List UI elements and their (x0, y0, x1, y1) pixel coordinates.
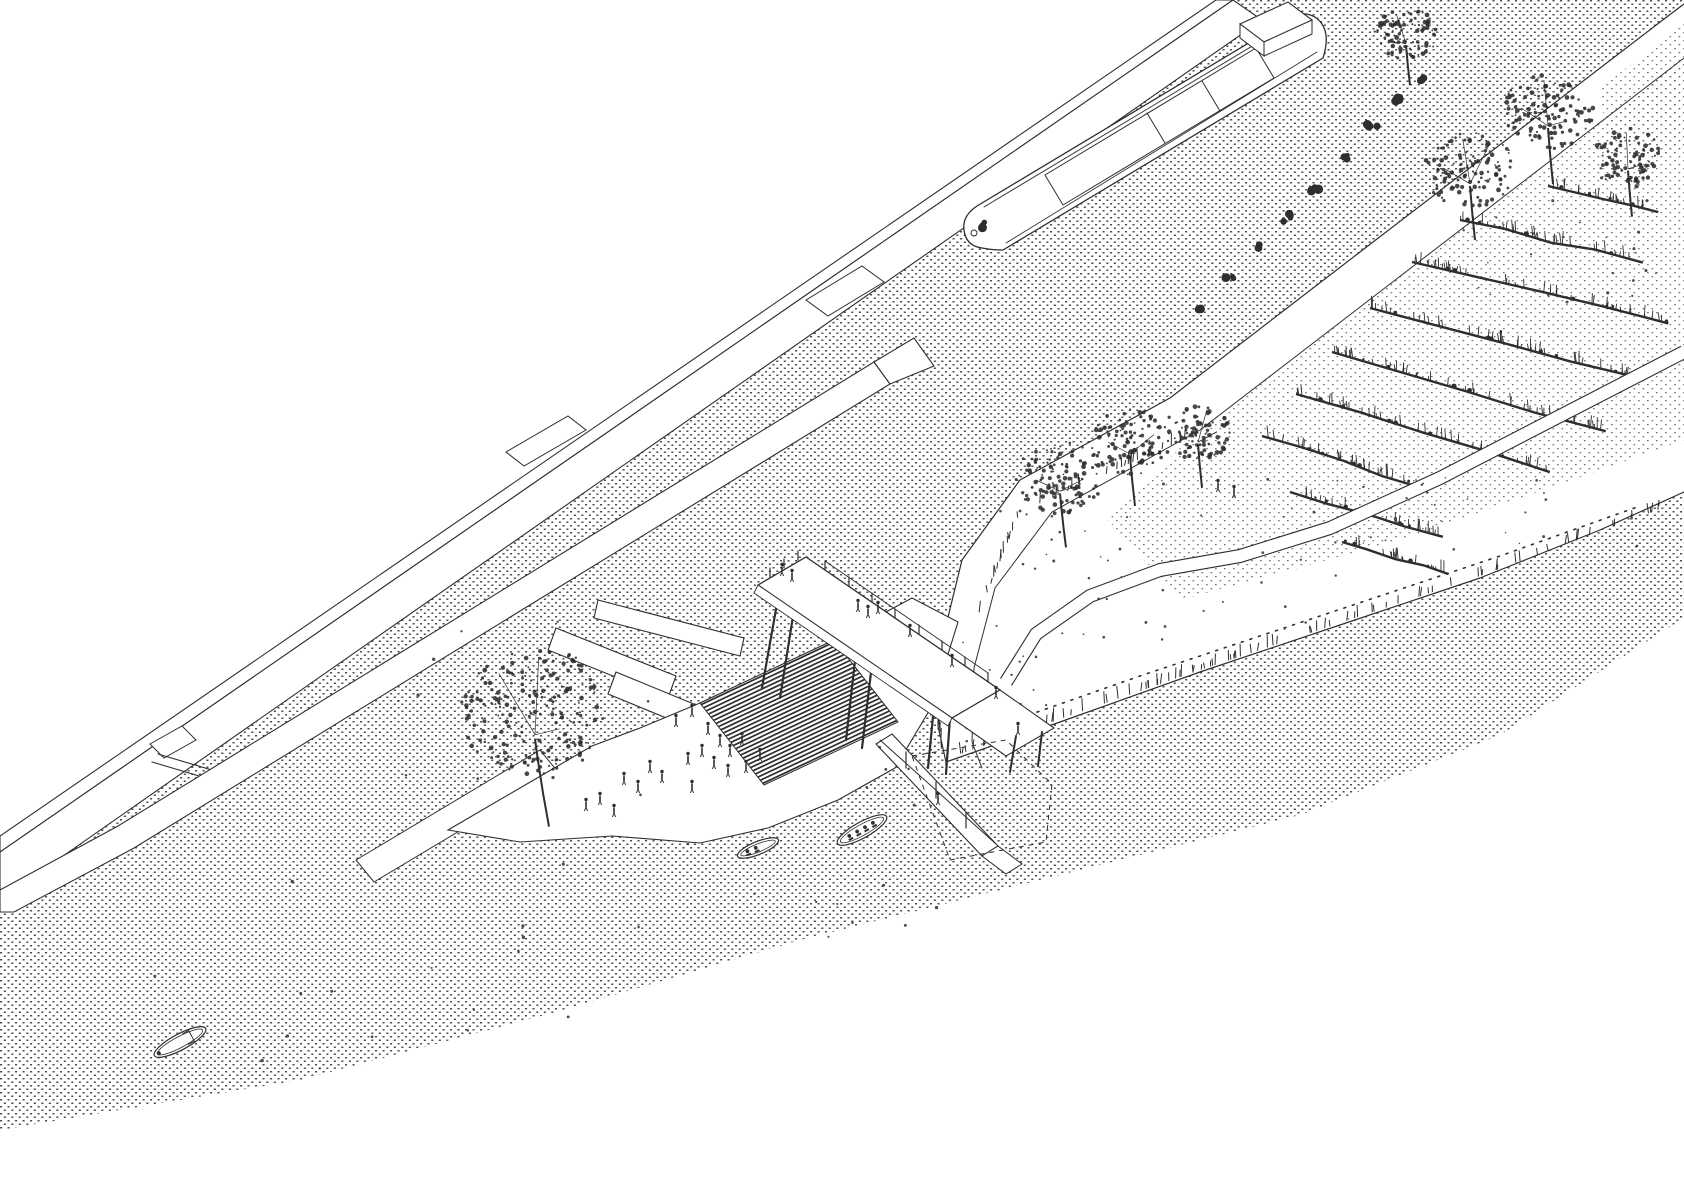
speck (1348, 618, 1349, 619)
speck (1097, 597, 1100, 600)
speck (1519, 543, 1521, 545)
speck (1426, 491, 1428, 493)
speck (153, 975, 156, 978)
speck (1543, 492, 1545, 494)
speck (1362, 486, 1364, 488)
speck (1542, 535, 1545, 538)
speck (1051, 515, 1054, 518)
speck (1260, 581, 1263, 584)
speck (1370, 528, 1371, 529)
speck (1635, 252, 1637, 254)
speck (1052, 560, 1055, 563)
speck (286, 1034, 289, 1037)
speck (1161, 638, 1163, 640)
speck (851, 921, 854, 924)
speck (1107, 559, 1109, 561)
grass-tuft (1017, 511, 1018, 517)
speck (1025, 513, 1027, 515)
speck (575, 657, 577, 659)
grass-tuft (1631, 514, 1632, 520)
speck (1162, 589, 1165, 592)
speck (260, 1059, 263, 1062)
speck (1405, 497, 1407, 499)
speck (405, 774, 408, 777)
speck (1612, 272, 1614, 274)
bow-hatch (971, 230, 977, 236)
speck (299, 992, 302, 995)
speck (1022, 563, 1025, 566)
speck (1421, 484, 1423, 486)
speck (557, 621, 559, 623)
grass-tuft (1137, 447, 1138, 460)
speck (1442, 521, 1444, 523)
speck (1200, 514, 1202, 516)
speck (562, 863, 565, 866)
speck (397, 700, 399, 702)
grass-tuft (1428, 587, 1429, 593)
speck (1261, 551, 1264, 554)
grass-tuft (941, 741, 942, 749)
speck (637, 926, 640, 929)
speck (878, 746, 881, 749)
speck (1034, 567, 1036, 569)
speck (1434, 504, 1436, 506)
speck (517, 950, 520, 953)
speck (1606, 291, 1609, 294)
speck (962, 642, 964, 644)
speck (1495, 216, 1497, 218)
grass-tuft (1613, 520, 1614, 526)
speck (1452, 548, 1455, 551)
speck (431, 967, 433, 969)
speck (1304, 621, 1307, 624)
speck (907, 768, 910, 771)
speck (1019, 510, 1022, 513)
speck (1544, 498, 1547, 501)
grass-tuft (1063, 708, 1064, 717)
architectural-axonometric-drawing (0, 0, 1684, 1191)
grass-tuft (1104, 691, 1105, 703)
speck (1283, 516, 1285, 518)
speck (1566, 301, 1569, 304)
speck (1505, 532, 1506, 533)
speck (1487, 262, 1489, 264)
speck (1266, 478, 1269, 481)
speck (815, 901, 817, 903)
speck (1222, 601, 1224, 603)
speck (1291, 507, 1293, 509)
speck (647, 700, 650, 703)
speck (865, 786, 867, 788)
speck (1632, 247, 1635, 250)
speck (1010, 674, 1012, 676)
speck (1535, 479, 1538, 482)
speck (687, 843, 689, 845)
speck (1019, 660, 1021, 662)
speck (1162, 482, 1165, 485)
speck (1022, 655, 1024, 657)
drawing-canvas (0, 0, 1684, 1191)
grass-tuft (1162, 442, 1163, 449)
speck (753, 893, 755, 895)
speck (319, 1067, 321, 1069)
speck (467, 1029, 470, 1032)
speck (290, 880, 294, 884)
speck (1033, 689, 1035, 691)
speck (913, 804, 916, 807)
speck (1046, 554, 1048, 556)
speck (1313, 511, 1316, 514)
speck (1083, 633, 1085, 635)
speck (1100, 556, 1102, 558)
speck (1563, 236, 1565, 238)
speck (1644, 269, 1647, 272)
speck (330, 990, 333, 993)
speck (1370, 536, 1372, 538)
speck (1126, 516, 1128, 518)
speck (1524, 511, 1526, 513)
speck (1334, 541, 1336, 543)
speck (1164, 625, 1167, 628)
speck (1084, 530, 1086, 532)
speck (1532, 232, 1534, 234)
speck (371, 1035, 374, 1038)
speck (1579, 221, 1581, 223)
speck (827, 936, 829, 938)
speck (1505, 275, 1506, 276)
speck (473, 1009, 475, 1011)
speck (1632, 279, 1635, 282)
speck (904, 924, 907, 927)
speck (1300, 559, 1302, 561)
speck (567, 653, 571, 657)
speck (1088, 577, 1091, 580)
speck (966, 740, 969, 743)
speck (521, 924, 524, 927)
speck (1385, 539, 1387, 541)
speck (1530, 253, 1532, 255)
grass-tuft (1277, 636, 1278, 644)
speck (884, 768, 887, 771)
speck (1035, 656, 1038, 659)
speck (639, 793, 642, 796)
speck (989, 669, 991, 671)
speck (1045, 704, 1047, 706)
speck (1363, 542, 1364, 543)
speck (1284, 605, 1287, 608)
speck (1284, 628, 1286, 630)
speck (999, 510, 1002, 513)
speck (1058, 531, 1061, 534)
speck (1445, 477, 1447, 479)
speck (551, 776, 554, 779)
speck (996, 625, 998, 627)
speck (1547, 294, 1549, 296)
speck (432, 658, 435, 661)
speck (1478, 287, 1480, 289)
grass-tuft (1071, 709, 1072, 715)
speck (1334, 574, 1336, 576)
speck (836, 903, 838, 905)
speck (567, 1015, 570, 1018)
speck (1106, 598, 1108, 600)
speck (1050, 538, 1052, 540)
speck (1467, 498, 1469, 500)
bush (1221, 273, 1236, 282)
grass-tuft (1357, 605, 1358, 617)
speck (1337, 480, 1339, 482)
speck (1551, 199, 1554, 202)
grass-tuft (1212, 658, 1213, 665)
speck (460, 630, 462, 632)
speck (1061, 632, 1063, 634)
speck (1121, 576, 1122, 577)
speck (1533, 290, 1535, 292)
speck (1203, 610, 1205, 612)
speck (476, 777, 479, 780)
speck (1645, 199, 1648, 202)
speck (882, 884, 885, 887)
speck (1119, 548, 1122, 551)
grass-tuft (1329, 620, 1330, 626)
speck (416, 693, 419, 696)
speck (1102, 636, 1105, 639)
grass-tuft (1129, 683, 1130, 694)
speck (1631, 295, 1633, 297)
speck (1144, 621, 1147, 624)
speck (1605, 237, 1607, 239)
speck (522, 936, 525, 939)
speck (1636, 545, 1639, 548)
speck (1462, 229, 1464, 231)
speck (935, 906, 938, 909)
speck (1490, 294, 1492, 296)
speck (1637, 231, 1640, 234)
speck (1655, 272, 1657, 274)
